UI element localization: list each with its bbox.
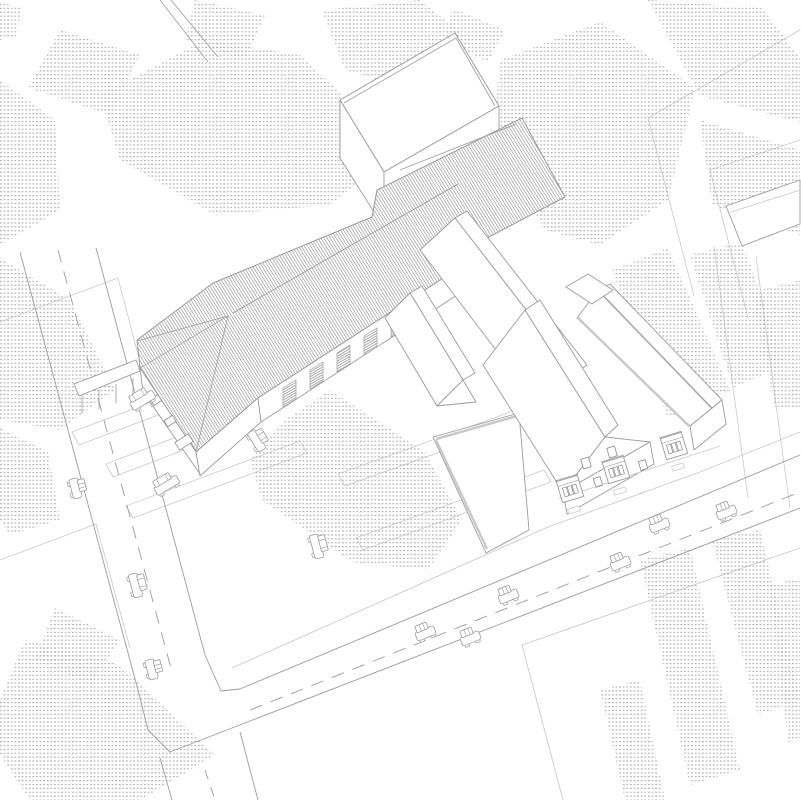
site-plan-stage: Axonometric site plan drawing of a forme… <box>0 0 801 800</box>
site-axonometric-svg <box>0 0 801 800</box>
tree-stipple <box>0 428 60 535</box>
axonometric-drawing <box>0 0 801 800</box>
entrance-step <box>672 463 685 471</box>
field-stipple <box>250 390 462 570</box>
street-car <box>713 499 738 522</box>
hedge-stipple <box>600 680 665 800</box>
parked-van <box>150 470 181 498</box>
bay-window <box>659 431 689 460</box>
street-car <box>66 476 88 500</box>
street-car <box>495 583 520 606</box>
tree-stipple <box>0 80 60 245</box>
street-car <box>607 550 632 573</box>
tree-stipple <box>0 258 115 430</box>
tree-stipple <box>0 640 215 800</box>
street-car <box>646 512 671 535</box>
side-street-east-edge <box>240 732 258 800</box>
street-van <box>126 571 149 599</box>
tree-stipple <box>0 2 22 40</box>
street-car <box>142 657 164 681</box>
entrance-step <box>614 487 627 495</box>
street-car <box>457 625 482 648</box>
side-street-centerline <box>205 770 215 800</box>
street-car <box>412 620 437 643</box>
